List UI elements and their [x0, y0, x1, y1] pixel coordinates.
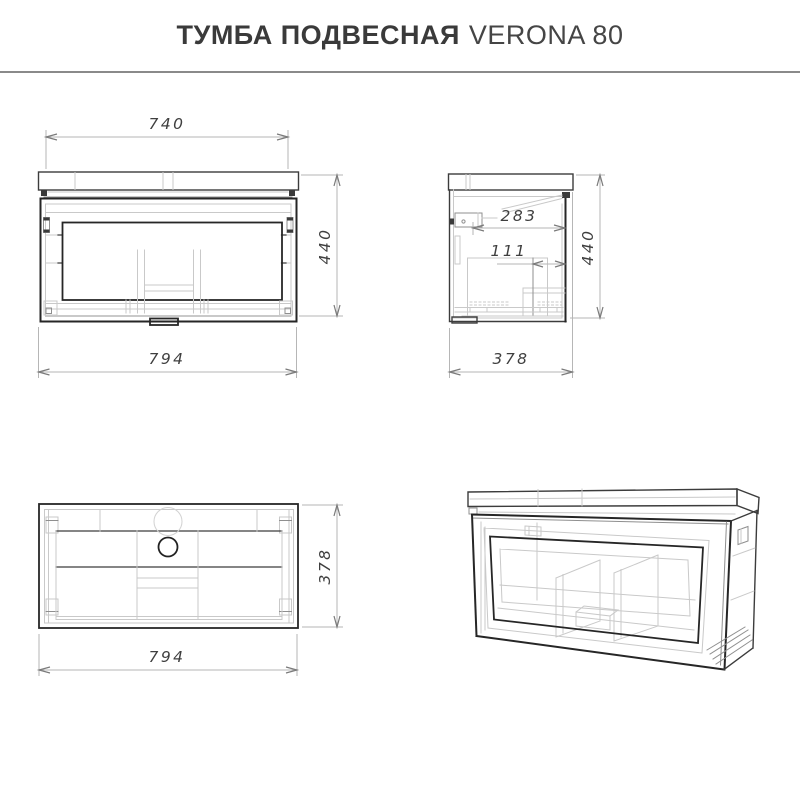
- sheet-header: ТУМБА ПОДВЕСНАЯ VERONA 80: [0, 0, 800, 73]
- dim-front-overall-width: 794: [39, 327, 297, 378]
- technical-drawing: 740 440 794: [0, 73, 800, 798]
- front-drawer-panel: [63, 223, 283, 301]
- dim-label-111: 111: [490, 242, 527, 260]
- dim-label-378-top: 378: [316, 547, 334, 584]
- top-view: 378 794: [39, 504, 343, 676]
- dim-label-440-side: 440: [579, 228, 597, 265]
- front-countertop-details: [75, 173, 173, 190]
- dim-top-depth: 378: [302, 505, 343, 627]
- dim-label-440: 440: [316, 227, 334, 264]
- perspective-countertop: [468, 489, 759, 514]
- dim-label-378-side: 378: [492, 350, 529, 368]
- side-view: 283 111 440 378: [449, 174, 606, 378]
- top-corner-brackets: [46, 517, 292, 615]
- dim-label-283: 283: [500, 207, 537, 225]
- product-model: VERONA 80: [469, 20, 624, 51]
- perspective-view: [468, 489, 759, 670]
- drawing-sheet: ТУМБА ПОДВЕСНАЯ VERONA 80: [0, 0, 800, 798]
- dim-label-794-top: 794: [148, 648, 185, 666]
- drain-hole: [159, 538, 178, 557]
- dim-side-drawer-offset: 111: [490, 242, 565, 267]
- dim-label-740: 740: [148, 115, 185, 133]
- front-view: 740 440 794: [39, 115, 344, 378]
- dim-front-height: 440: [299, 175, 343, 316]
- side-slide-rails: [455, 302, 563, 316]
- dim-front-top-width: 740: [46, 115, 288, 169]
- front-interior-lines: [46, 250, 290, 316]
- dim-top-width: 794: [39, 634, 297, 676]
- dim-label-794: 794: [148, 350, 185, 368]
- dim-side-inner-depth: 283: [473, 207, 565, 235]
- product-title: ТУМБА ПОДВЕСНАЯ: [177, 20, 460, 51]
- dim-side-height: 440: [570, 175, 605, 318]
